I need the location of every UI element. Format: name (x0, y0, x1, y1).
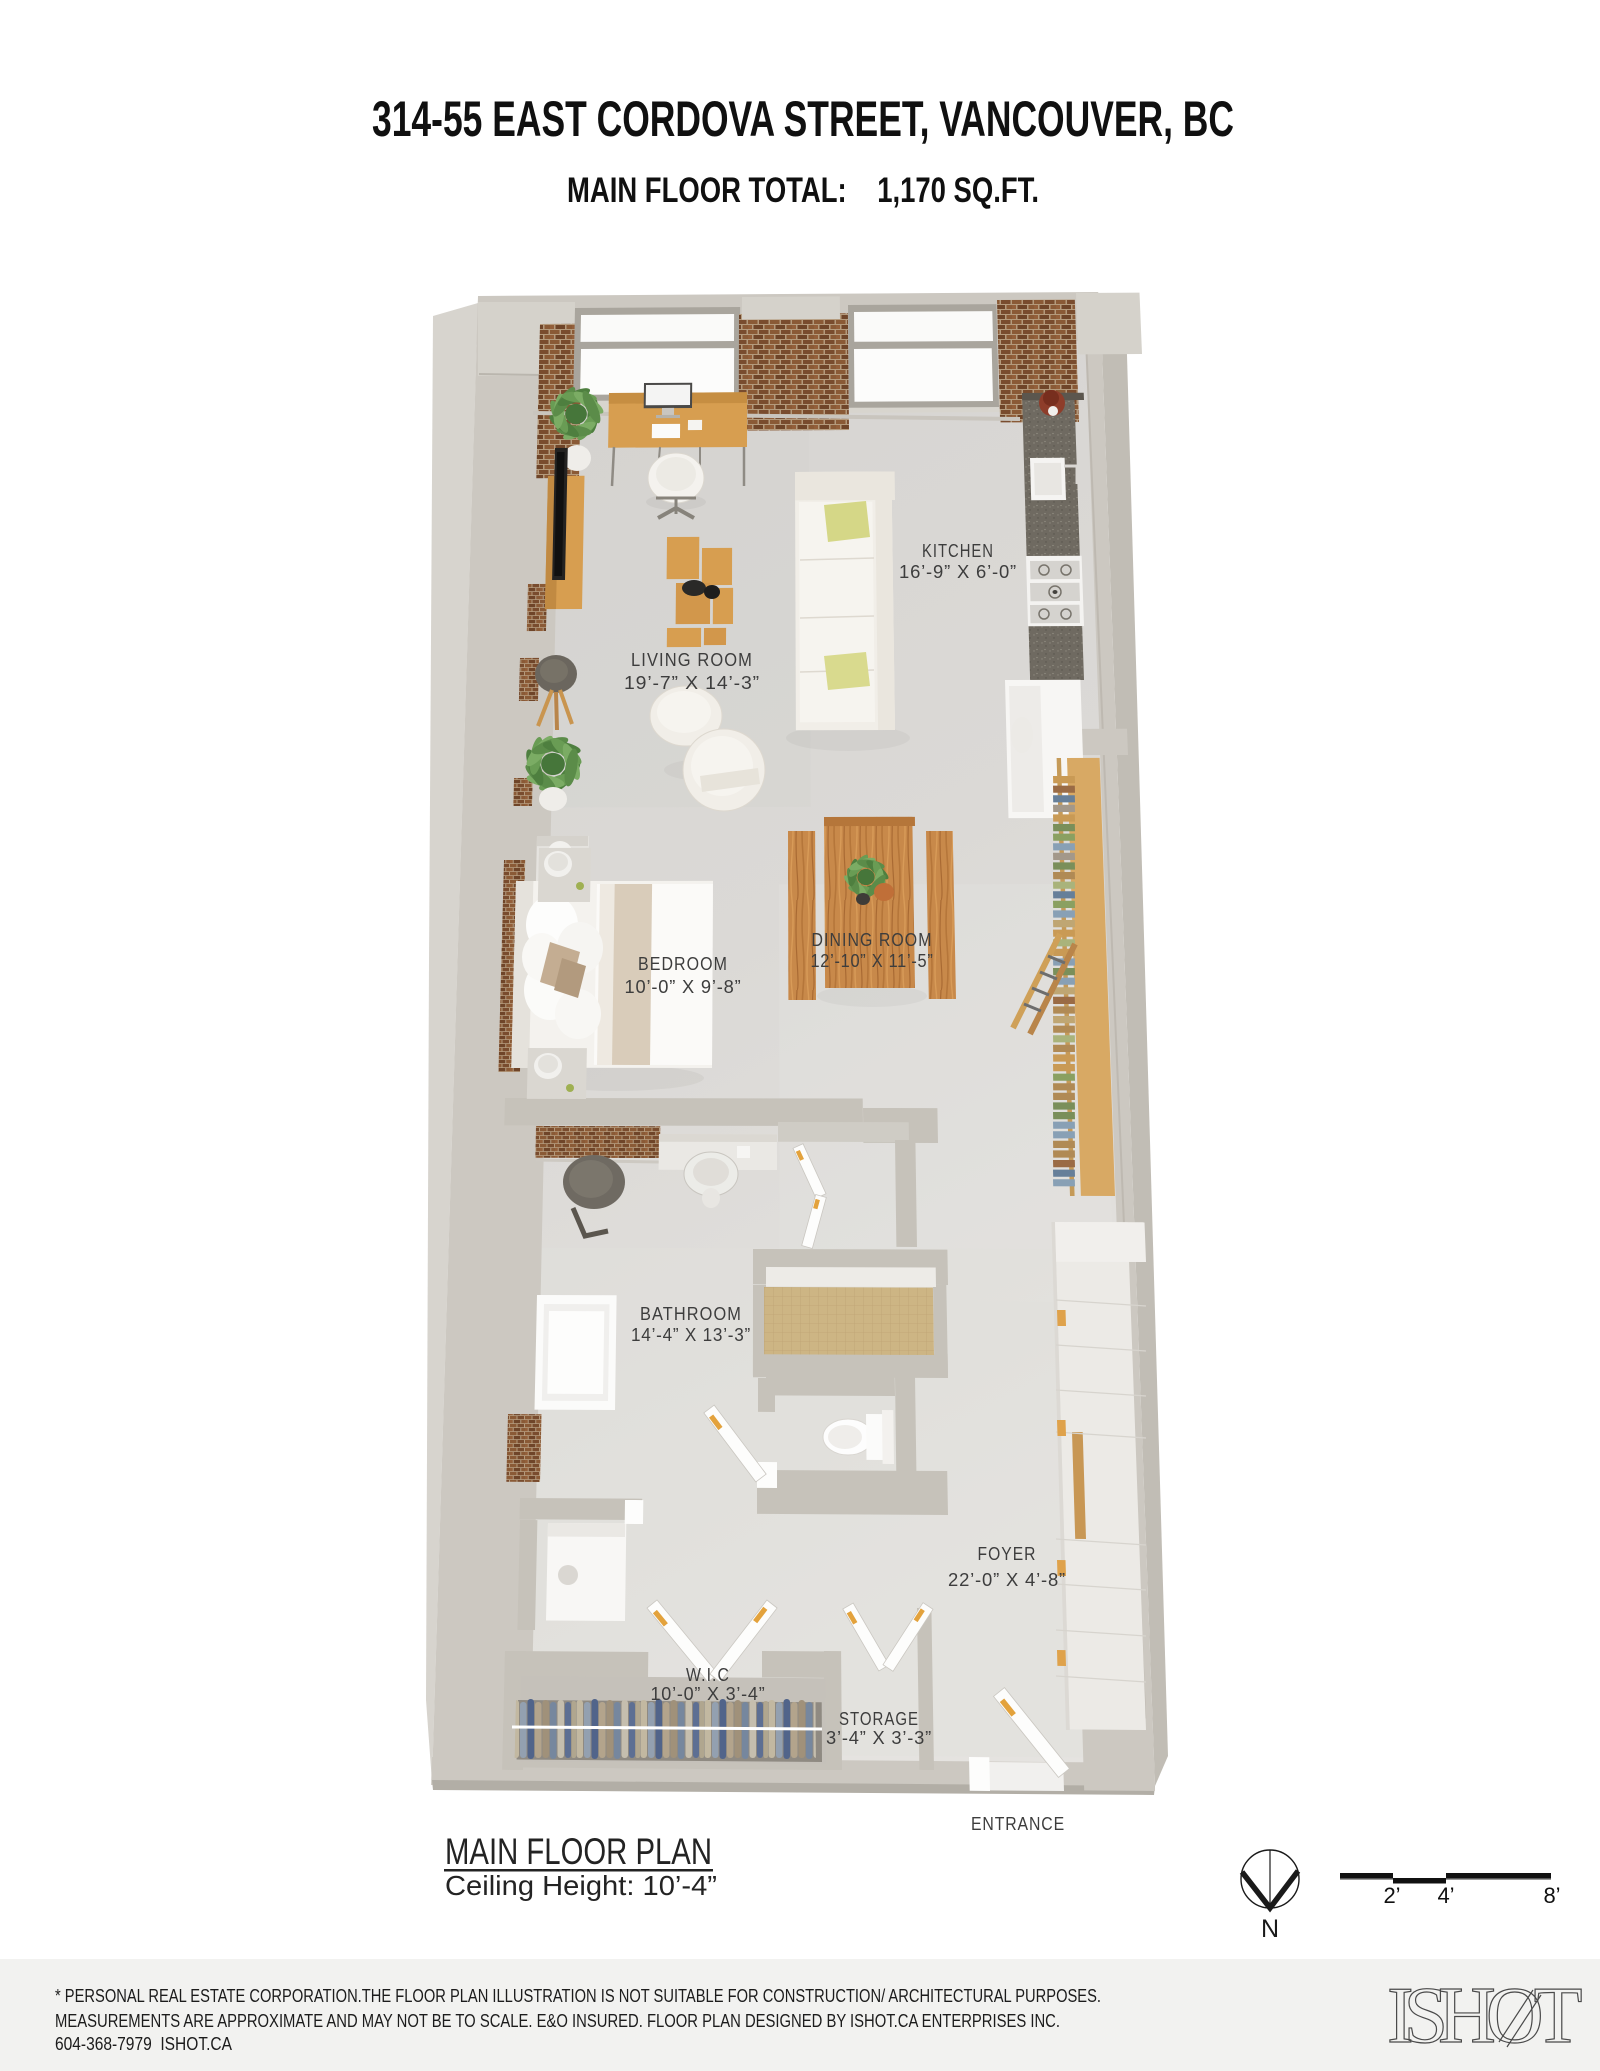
svg-text:BATHROOM: BATHROOM (640, 1304, 742, 1324)
svg-text:MAIN FLOOR PLAN: MAIN FLOOR PLAN (445, 1831, 712, 1872)
svg-text:DINING ROOM: DINING ROOM (812, 930, 933, 950)
svg-text:3’-4” X 3’-3”: 3’-4” X 3’-3” (826, 1728, 932, 1748)
svg-text:19’-7” X 14’-3”: 19’-7” X 14’-3” (624, 673, 760, 693)
svg-text:ISHOT: ISHOT (1387, 1972, 1582, 2060)
svg-text:* PERSONAL REAL ESTATE CORPORA: * PERSONAL REAL ESTATE CORPORATION.THE F… (55, 1986, 1101, 2006)
svg-text:Ceiling Height: 10’-4”: Ceiling Height: 10’-4” (445, 1870, 717, 1901)
svg-text:MAIN FLOOR TOTAL: 1,170 SQ.: MAIN FLOOR TOTAL: 1,170 SQ.FT. (567, 171, 1039, 210)
svg-text:10’-0” X 9’-8”: 10’-0” X 9’-8” (625, 977, 742, 997)
svg-text:8’: 8’ (1543, 1883, 1560, 1908)
svg-text:ENTRANCE: ENTRANCE (971, 1814, 1065, 1834)
svg-text:W.I.C: W.I.C (686, 1665, 730, 1685)
svg-text:12’-10” X 11’-5”: 12’-10” X 11’-5” (811, 951, 934, 971)
svg-text:BEDROOM: BEDROOM (638, 954, 728, 974)
svg-text:4’: 4’ (1437, 1883, 1454, 1908)
svg-text:604-368-7979 ISHOT.CA: 604-368-7979 ISHOT.CA (55, 2034, 232, 2054)
svg-text:FOYER: FOYER (978, 1544, 1037, 1564)
svg-text:N: N (1261, 1915, 1279, 1943)
svg-text:10’-0” X 3’-4”: 10’-0” X 3’-4” (651, 1684, 766, 1704)
svg-text:14’-4” X 13’-3”: 14’-4” X 13’-3” (631, 1325, 751, 1345)
svg-text:16’-9” X 6’-0”: 16’-9” X 6’-0” (899, 562, 1017, 582)
svg-text:STORAGE: STORAGE (839, 1709, 919, 1729)
svg-text:2’: 2’ (1383, 1883, 1400, 1908)
svg-text:22’-0” X 4’-8”: 22’-0” X 4’-8” (948, 1570, 1066, 1590)
svg-text:LIVING ROOM: LIVING ROOM (631, 650, 753, 670)
svg-text:KITCHEN: KITCHEN (922, 541, 994, 561)
svg-text:314-55 EAST CORDOVA STREET, VA: 314-55 EAST CORDOVA STREET, VANCOUVER, B… (372, 91, 1234, 147)
svg-text:MEASUREMENTS ARE APPROXIMATE A: MEASUREMENTS ARE APPROXIMATE AND MAY NOT… (55, 2011, 1060, 2031)
